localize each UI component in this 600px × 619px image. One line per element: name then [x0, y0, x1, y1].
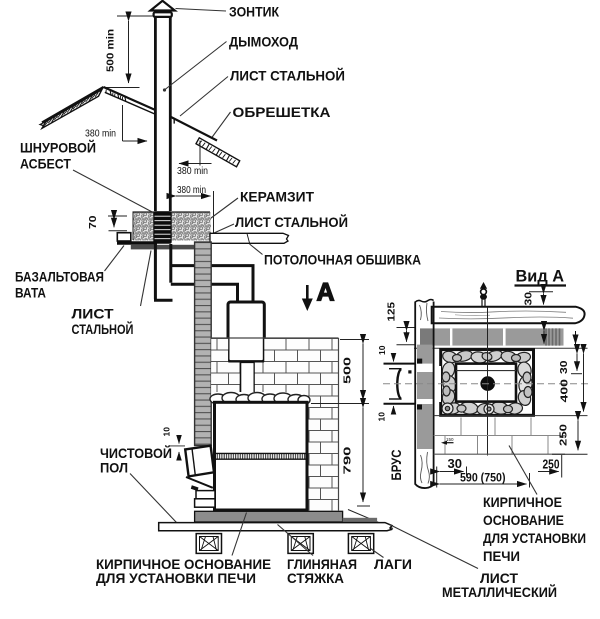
- svg-text:ДЛЯ УСТАНОВКИ ПЕЧИ: ДЛЯ УСТАНОВКИ ПЕЧИ: [96, 571, 256, 586]
- svg-text:30: 30: [448, 456, 463, 471]
- svg-text:380 min: 380 min: [85, 128, 116, 140]
- svg-text:СТЯЖКА: СТЯЖКА: [287, 571, 344, 586]
- svg-text:ДЛЯ УСТАНОВКИ: ДЛЯ УСТАНОВКИ: [483, 531, 586, 546]
- svg-text:70: 70: [87, 215, 99, 229]
- svg-text:БРУС: БРУС: [388, 450, 404, 481]
- svg-text:400: 400: [559, 379, 571, 403]
- svg-text:КЕРАМЗИТ: КЕРАМЗИТ: [240, 190, 315, 205]
- svg-text:ЗОНТИК: ЗОНТИК: [229, 5, 280, 20]
- svg-text:ПЕЧИ: ПЕЧИ: [483, 549, 520, 564]
- svg-text:590 (750): 590 (750): [460, 473, 506, 485]
- svg-text:СТАЛЬНОЙ: СТАЛЬНОЙ: [72, 322, 134, 337]
- svg-text:МЕТАЛЛИЧЕСКИЙ: МЕТАЛЛИЧЕСКИЙ: [442, 585, 557, 600]
- svg-text:30: 30: [523, 292, 535, 306]
- svg-text:БАЗАЛЬТОВАЯ: БАЗАЛЬТОВАЯ: [15, 270, 104, 285]
- svg-text:150: 150: [446, 437, 454, 442]
- svg-text:ВАТА: ВАТА: [15, 286, 46, 301]
- svg-text:ЛАГИ: ЛАГИ: [374, 557, 412, 572]
- svg-text:ГЛИНЯНАЯ: ГЛИНЯНАЯ: [287, 557, 357, 572]
- svg-text:ОСНОВАНИЕ: ОСНОВАНИЕ: [483, 513, 564, 528]
- svg-text:790: 790: [342, 446, 354, 474]
- svg-text:500 min: 500 min: [105, 29, 117, 72]
- svg-text:ДЫМОХОД: ДЫМОХОД: [229, 35, 298, 50]
- svg-text:ОБРЕШЕТКА: ОБРЕШЕТКА: [233, 105, 331, 120]
- svg-text:A: A: [317, 279, 335, 307]
- svg-text:380 min: 380 min: [177, 184, 206, 196]
- svg-text:380 min: 380 min: [177, 165, 208, 177]
- svg-text:ЛИСТ: ЛИСТ: [480, 571, 519, 586]
- svg-text:АСБЕСТ: АСБЕСТ: [20, 157, 72, 172]
- svg-text:250: 250: [543, 457, 560, 472]
- svg-text:250: 250: [558, 424, 570, 446]
- svg-text:Вид А: Вид А: [516, 268, 565, 286]
- svg-text:ПОТОЛОЧНАЯ ОБШИВКА: ПОТОЛОЧНАЯ ОБШИВКА: [264, 253, 421, 268]
- svg-text:ПОЛ: ПОЛ: [100, 461, 128, 476]
- svg-text:10: 10: [377, 345, 387, 355]
- svg-text:ЛИСТ: ЛИСТ: [72, 307, 115, 322]
- svg-text:500: 500: [342, 357, 354, 384]
- svg-text:КИРПИЧНОЕ: КИРПИЧНОЕ: [483, 495, 562, 510]
- svg-text:10: 10: [162, 427, 172, 437]
- svg-text:ЛИСТ СТАЛЬНОЙ: ЛИСТ СТАЛЬНОЙ: [235, 215, 348, 230]
- svg-text:125: 125: [386, 302, 398, 322]
- svg-text:ЧИСТОВОЙ: ЧИСТОВОЙ: [100, 446, 172, 461]
- svg-text:30: 30: [558, 360, 570, 374]
- svg-text:ШНУРОВОЙ: ШНУРОВОЙ: [20, 141, 96, 156]
- svg-text:10: 10: [377, 412, 387, 422]
- svg-text:КИРПИЧНОЕ ОСНОВАНИЕ: КИРПИЧНОЕ ОСНОВАНИЕ: [96, 557, 271, 572]
- svg-text:ЛИСТ СТАЛЬНОЙ: ЛИСТ СТАЛЬНОЙ: [230, 69, 345, 84]
